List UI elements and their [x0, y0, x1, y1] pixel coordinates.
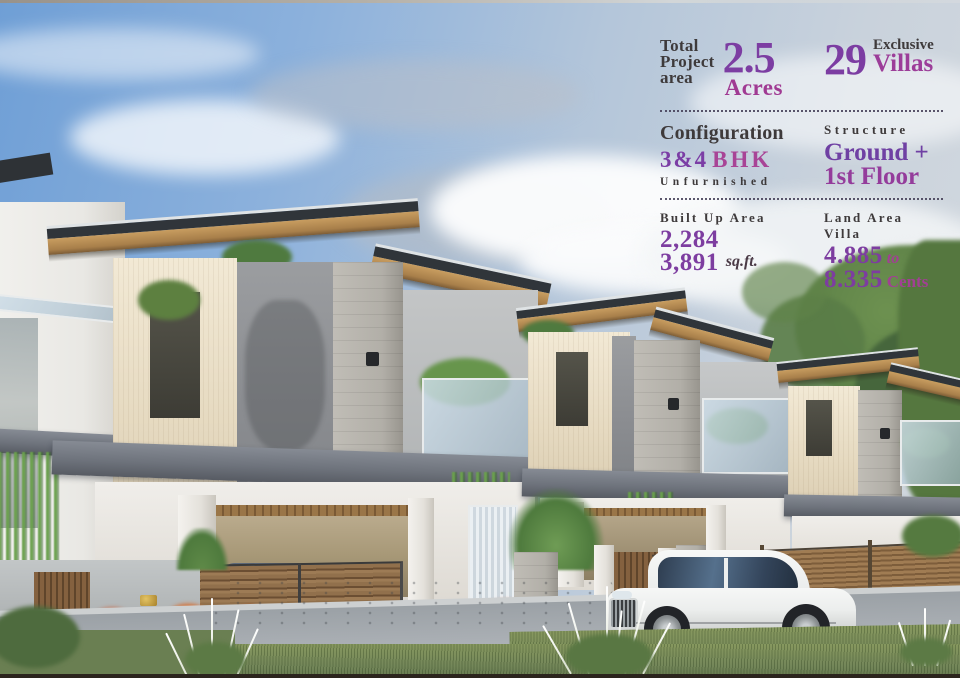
total-project-label: Total Project area [660, 38, 715, 86]
villas-label: Villas [873, 53, 934, 75]
land-area-block: Land Area Villa 4.885 to 8.335 Cents [810, 210, 943, 292]
furnishing-status: Unfurnished [660, 176, 810, 188]
tuft-base [900, 638, 952, 666]
top-border [0, 0, 960, 3]
configuration-block: Configuration 3&4 BHK Unfurnished [660, 122, 810, 189]
wall-lamp [880, 428, 890, 439]
label-line: area [660, 70, 715, 86]
panel-row-3: Built Up Area 2,284 3,891 sq.ft. Land Ar… [660, 210, 943, 292]
tuft-base [185, 642, 245, 678]
total-project-value: 2.5 Acres [723, 40, 783, 101]
grass-tuft [892, 586, 960, 670]
built-up-min: 2,284 [660, 228, 719, 251]
villa-count: 29 [824, 42, 866, 77]
villa-2-balcony-glass [702, 398, 790, 474]
gold-name-plate [140, 595, 157, 606]
land-area-min: 4.885 [824, 242, 883, 269]
project-info-panel: Total Project area 2.5 Acres 29 Exclusiv… [660, 38, 943, 292]
panel-row-1: Total Project area 2.5 Acres 29 Exclusiv… [660, 38, 943, 101]
villa-3-window [806, 400, 832, 456]
wall-lamp [366, 352, 379, 366]
wall-shadow [245, 300, 325, 450]
panel-row-2: Configuration 3&4 BHK Unfurnished Struct… [660, 122, 943, 189]
palm-fronds [176, 528, 228, 570]
land-area-max: 8.335 [824, 266, 883, 293]
cloud [250, 60, 580, 130]
dotted-divider [660, 198, 943, 200]
built-up-max: 3,891 [660, 251, 719, 274]
structure-label: Structure [824, 122, 943, 138]
exclusive-villas-block: 29 Exclusive Villas [810, 38, 943, 101]
bhk-count: 3&4 [660, 147, 708, 172]
total-project-area-block: Total Project area 2.5 Acres [660, 38, 810, 101]
grass-tuft [175, 570, 255, 678]
grass-tuft [548, 568, 668, 678]
window-plant [138, 280, 200, 320]
tuft-base [566, 634, 652, 678]
bhk-suffix: BHK [712, 147, 772, 172]
land-area-label: Land Area Villa [824, 210, 943, 242]
villa-2-window [556, 352, 588, 426]
built-up-area-block: Built Up Area 2,284 3,891 sq.ft. [660, 210, 810, 292]
wall-lamp [668, 398, 679, 410]
dotted-divider [660, 110, 943, 112]
structure-value-line1: Ground + [824, 141, 943, 165]
land-area-connector: to [887, 250, 899, 267]
total-area-value: 2.5 [723, 40, 783, 75]
land-area-unit: Cents [887, 272, 929, 291]
car-window-pillar [724, 558, 728, 588]
structure-block: Structure Ground + 1st Floor [810, 122, 943, 189]
villa-2-stone-pillar [634, 340, 700, 490]
villa-3-balcony-glass [900, 420, 960, 486]
car-windows [658, 557, 798, 588]
built-up-area-label: Built Up Area [660, 210, 810, 226]
villa-project-advertisement: Total Project area 2.5 Acres 29 Exclusiv… [0, 0, 960, 678]
shrub [902, 515, 960, 557]
built-up-unit: sq.ft. [726, 253, 758, 274]
bottom-border [0, 674, 960, 678]
villa-2-gray-wall [612, 336, 636, 488]
configuration-label: Configuration [660, 122, 810, 145]
carport-wood-ceiling [216, 505, 412, 516]
structure-value-line2: 1st Floor [824, 165, 943, 189]
total-area-unit: Acres [725, 75, 783, 101]
villa-3-stone-pillar [858, 390, 902, 506]
